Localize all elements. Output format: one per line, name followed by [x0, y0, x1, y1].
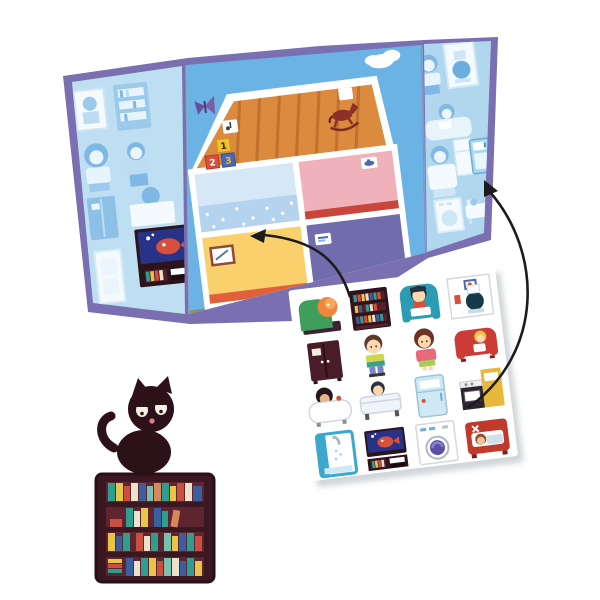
cat-sticker	[102, 376, 174, 474]
sticker-refrigerator	[415, 374, 448, 417]
sticker-tv-stand-fish-tank	[364, 427, 409, 472]
silhouette-wardrobe	[87, 196, 119, 241]
silhouette-toilet-frame	[443, 41, 478, 88]
playroom-sticker-slot	[315, 233, 332, 246]
bookshelf-sticker	[96, 474, 214, 582]
sticker-bookshelf	[349, 287, 392, 331]
bookshelf-shelf-4	[106, 557, 204, 576]
picture-frame-icon	[210, 246, 234, 266]
sticker-washing-machine	[416, 420, 459, 464]
bookshelf-shelf-3	[106, 532, 204, 552]
sticker-armchair-with-boy	[399, 283, 441, 323]
sticker-wardrobe	[307, 340, 344, 385]
silhouette-door	[94, 249, 125, 303]
attic-sticker-slot	[222, 119, 238, 134]
silhouette-washing-machine	[434, 198, 464, 233]
bookshelf-shelf-1	[106, 482, 204, 502]
bedroom-sticker-slot	[361, 156, 378, 169]
silhouette-bookshelf	[113, 82, 152, 131]
block-2-label: 2	[209, 158, 216, 169]
silhouette-framed-picture	[73, 88, 107, 131]
attic-wall-slot	[338, 87, 353, 101]
sticker-toilet-frame	[447, 274, 494, 319]
bookshelf-shelf-2	[106, 507, 204, 528]
block-1-label: 1	[220, 142, 227, 153]
sticker-shower	[316, 431, 357, 477]
block-3-label: 3	[225, 156, 232, 167]
sticker-sheet	[288, 265, 524, 487]
product-photo: 1 2 3	[0, 0, 600, 600]
scene-svg: 1 2 3	[0, 0, 600, 600]
